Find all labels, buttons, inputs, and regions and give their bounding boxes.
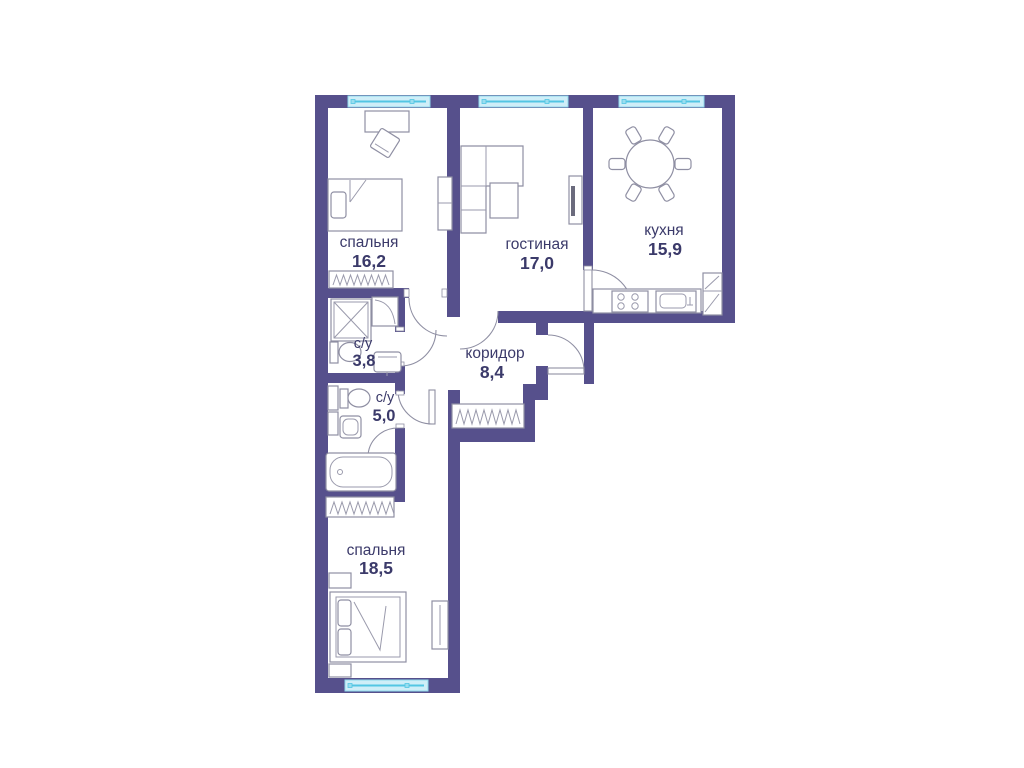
wall-left	[315, 95, 328, 693]
room-label-living-name: гостиная	[505, 236, 568, 253]
room-label-bedroom2-name: спальня	[347, 542, 406, 559]
window-kitchen	[619, 96, 704, 107]
room-label-bedroom1-area: 16,2	[352, 251, 386, 271]
bedroom1-furniture	[328, 111, 452, 288]
bedroom2-furniture	[326, 497, 448, 677]
cabinet	[328, 412, 338, 435]
door-arc-bedroom1	[409, 298, 447, 336]
wall-living-kitchen	[583, 107, 593, 270]
kitchen-sink	[656, 291, 696, 312]
room-label-kitchen-name: кухня	[644, 222, 683, 239]
room-label-bath2-name: с/у	[376, 390, 395, 406]
door-jamb-notch	[396, 327, 404, 331]
room-label-bath1-name: с/у	[354, 336, 373, 352]
shower	[331, 299, 371, 341]
hanger-wardrobe	[329, 271, 393, 288]
kitchen-furniture	[593, 126, 722, 315]
tv-screen	[571, 186, 575, 216]
floor-plan-canvas: спальня 16,2 гостиная 17,0 кухня 15,9 с/…	[0, 0, 1024, 768]
window-living	[479, 96, 568, 107]
nightstand	[329, 664, 351, 677]
washing-machine	[372, 297, 398, 326]
floor-plan-svg: спальня 16,2 гостиная 17,0 кухня 15,9 с/…	[0, 0, 1024, 768]
pillow	[331, 192, 346, 218]
double-bed	[330, 592, 406, 662]
room-label-bath2-area: 5,0	[373, 407, 396, 425]
corridor-furniture	[452, 404, 524, 428]
pillow	[338, 629, 351, 655]
room-label-corridor-name: коридор	[465, 345, 524, 362]
washbasin	[374, 352, 401, 376]
cabinet	[328, 386, 338, 410]
coffee-table	[490, 183, 518, 218]
hanger-wardrobe	[452, 404, 524, 428]
room-label-living-area: 17,0	[520, 253, 554, 273]
door-arc-entrance	[548, 335, 584, 371]
wall-corridor-bottom	[448, 428, 535, 442]
bathtub	[326, 453, 396, 491]
washbasin	[340, 416, 361, 438]
wall-right-kitchen	[722, 95, 735, 323]
tv-stand	[569, 176, 582, 224]
door-arc-bath1	[400, 330, 436, 366]
stove	[612, 291, 648, 312]
wall-bath-divider	[315, 373, 403, 383]
pillow	[338, 600, 351, 626]
door-leaf-entrance	[548, 368, 584, 374]
fridge	[703, 273, 722, 315]
door-jamb-notch	[584, 266, 592, 270]
room-label-corridor-area: 8,4	[480, 362, 505, 382]
door-leaf-bath2	[429, 390, 435, 424]
wall-entrance-right	[584, 321, 594, 384]
dining-chair	[675, 159, 691, 170]
door-jamb-notch	[396, 424, 404, 428]
room-label-kitchen-area: 15,9	[648, 239, 682, 259]
door-jamb-notch	[404, 289, 409, 297]
wall-entrance-top-jamb	[536, 321, 548, 335]
door-jamb-notch	[442, 289, 447, 297]
door-leaf-kitchen	[584, 269, 592, 311]
room-label-bedroom1-name: спальня	[340, 234, 399, 251]
dining-chair	[609, 159, 625, 170]
room-label-bath1-area: 3,8	[353, 352, 376, 370]
door-arc-living	[460, 311, 498, 349]
dining-table	[626, 140, 674, 188]
wall-entrance-left-jamb	[536, 366, 548, 386]
window-bedroom1	[348, 96, 430, 107]
wall-door-stub	[447, 275, 460, 317]
hanger-wardrobe	[326, 497, 394, 517]
desk	[365, 111, 409, 132]
window-bedroom2	[345, 680, 428, 691]
living-furniture	[461, 146, 582, 233]
door-jamb-notch	[396, 391, 404, 395]
room-label-bedroom2-area: 18,5	[359, 558, 393, 578]
nightstand	[329, 573, 351, 588]
dresser	[432, 601, 448, 649]
wall-step-b	[523, 396, 535, 442]
toilet	[340, 389, 370, 408]
